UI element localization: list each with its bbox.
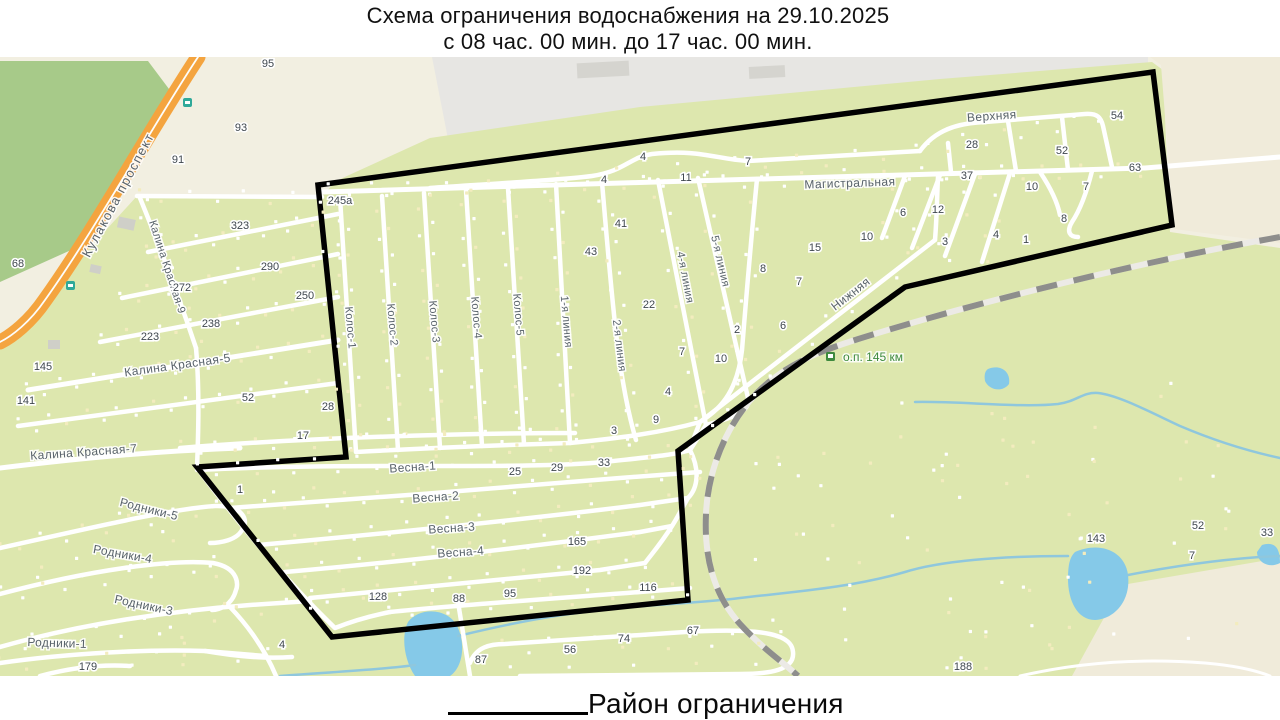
house-dot — [1179, 477, 1182, 480]
house-number: 7 — [679, 346, 685, 358]
house-dot — [338, 219, 341, 222]
house-dot — [1185, 440, 1188, 443]
house-dot — [663, 179, 666, 182]
house-number: 179 — [79, 661, 97, 673]
house-dot — [247, 511, 250, 514]
house-dot — [445, 181, 448, 184]
house-dot — [843, 608, 846, 611]
house-dot — [323, 303, 326, 306]
house-dot — [292, 256, 295, 259]
house-dot — [317, 379, 320, 382]
house-dot — [392, 553, 395, 556]
house-dot — [254, 437, 257, 440]
house-dot — [431, 546, 434, 549]
house-dot — [622, 187, 625, 190]
house-dot — [644, 566, 647, 569]
house-dot — [613, 314, 616, 317]
house-number: 93 — [235, 122, 247, 134]
house-dot — [375, 566, 378, 569]
house-dot — [343, 363, 346, 366]
house-dot — [932, 469, 935, 472]
house-dot — [169, 626, 172, 629]
house-dot — [549, 449, 552, 452]
house-dot — [586, 180, 589, 183]
house-dot — [25, 382, 28, 385]
legend: Район ограничения — [448, 688, 844, 720]
house-dot — [65, 422, 68, 425]
house-number: 52 — [1192, 520, 1204, 532]
house-dot — [143, 617, 146, 620]
house-dot — [661, 229, 664, 232]
house-dot — [256, 472, 259, 475]
house-dot — [47, 413, 50, 416]
house-dot — [295, 217, 298, 220]
house-dot — [472, 217, 475, 220]
house-dot — [152, 400, 155, 403]
house-dot — [434, 448, 437, 451]
house-dot — [1083, 552, 1086, 555]
house-dot — [515, 411, 518, 414]
house-number: 3 — [611, 425, 617, 437]
house-dot — [826, 557, 829, 560]
house-dot — [311, 224, 314, 227]
house-dot — [660, 478, 663, 481]
house-number: 238 — [202, 318, 220, 330]
house-dot — [327, 182, 330, 185]
house-dot — [429, 388, 432, 391]
house-dot — [386, 386, 389, 389]
house-dot — [682, 339, 685, 342]
house-dot — [262, 234, 265, 237]
house-dot — [604, 472, 607, 475]
house-number: 7 — [745, 156, 751, 168]
house-dot — [608, 182, 611, 185]
house-dot — [137, 299, 140, 302]
house-dot — [342, 588, 345, 591]
house-dot — [418, 234, 421, 237]
house-dot — [195, 234, 198, 237]
house-dot — [40, 566, 43, 569]
house-dot — [882, 170, 885, 173]
house-dot — [500, 639, 503, 642]
house-dot — [669, 529, 672, 532]
house-dot — [321, 250, 324, 253]
bus-stop-icon — [66, 281, 75, 290]
house-dot — [473, 495, 476, 498]
house-number: 88 — [453, 593, 465, 605]
house-dot — [172, 539, 175, 542]
house-number: 7 — [1189, 550, 1195, 562]
house-dot — [65, 539, 68, 542]
legend-label: Район ограничения — [588, 688, 844, 720]
house-dot — [326, 504, 329, 507]
house-dot — [961, 133, 964, 136]
house-dot — [783, 185, 786, 188]
house-dot — [928, 213, 931, 216]
house-dot — [358, 404, 361, 407]
house-dot — [293, 437, 296, 440]
title-line-2: с 08 час. 00 мин. до 17 час. 00 мин. — [0, 29, 1256, 55]
house-dot — [236, 237, 239, 240]
house-dot — [474, 416, 477, 419]
house-dot — [431, 221, 434, 224]
house-dot — [698, 477, 701, 480]
house-dot — [127, 514, 130, 517]
house-dot — [564, 179, 567, 182]
house-dot — [431, 418, 434, 421]
house-dot — [722, 307, 725, 310]
house-dot — [236, 461, 239, 464]
house-dot — [515, 247, 518, 250]
house-dot — [125, 328, 128, 331]
house-dot — [591, 445, 594, 448]
house-dot — [370, 525, 373, 528]
house-number: 245а — [328, 195, 353, 207]
house-dot — [343, 491, 346, 494]
house-dot — [611, 213, 614, 216]
house-dot — [477, 278, 480, 281]
house-number: 4 — [640, 151, 646, 163]
house-dot — [165, 563, 168, 566]
house-dot — [822, 452, 825, 455]
house-dot — [1099, 175, 1102, 178]
house-dot — [567, 475, 570, 478]
house-dot — [738, 379, 741, 382]
house-dot — [326, 600, 329, 603]
house-dot — [549, 593, 552, 596]
house-dot — [676, 247, 679, 250]
house-dot — [969, 630, 972, 633]
house-dot — [376, 584, 379, 587]
house-dot — [390, 449, 393, 452]
house-dot — [287, 342, 290, 345]
house-dot — [854, 149, 857, 152]
house-dot — [648, 177, 651, 180]
house-dot — [797, 474, 800, 477]
house-dot — [431, 589, 434, 592]
house-dot — [341, 302, 344, 305]
house-dot — [702, 390, 705, 393]
house-dot — [735, 349, 738, 352]
house-dot — [493, 460, 496, 463]
poi-label: о.п. 145 км — [843, 350, 903, 364]
house-dot — [945, 453, 948, 456]
house-dot — [81, 524, 84, 527]
house-dot — [721, 174, 724, 177]
house-dot — [489, 607, 492, 610]
house-dot — [744, 358, 747, 361]
house-dot — [279, 270, 282, 273]
house-dot — [218, 393, 221, 396]
house-dot — [908, 178, 911, 181]
house-dot — [603, 675, 606, 676]
house-number: 10 — [1026, 181, 1038, 193]
house-dot — [365, 433, 368, 436]
house-dot — [769, 374, 772, 377]
house-dot — [309, 607, 312, 610]
house-dot — [515, 443, 518, 446]
house-dot — [236, 660, 239, 663]
house-dot — [754, 558, 757, 561]
house-dot — [209, 564, 212, 567]
railway-stop-icon — [826, 352, 835, 361]
house-dot — [711, 272, 714, 275]
house-dot — [547, 637, 550, 640]
house-dot — [1001, 439, 1004, 442]
house-dot — [92, 373, 95, 376]
house-dot — [1000, 581, 1003, 584]
house-dot — [626, 438, 629, 441]
house-dot — [406, 181, 409, 184]
house-dot — [1019, 136, 1022, 139]
house-dot — [1112, 632, 1115, 635]
house-number: 41 — [615, 218, 627, 230]
house-dot — [937, 242, 940, 245]
house-dot — [712, 214, 715, 217]
house-dot — [312, 264, 315, 267]
map-canvas[interactable]: Кулакова проспектКалина Красная-9Калина … — [0, 57, 1280, 676]
house-dot — [135, 414, 138, 417]
house-dot — [695, 662, 698, 665]
house-dot — [103, 583, 106, 586]
house-number: 4 — [279, 639, 285, 651]
house-dot — [704, 230, 707, 233]
house-dot — [764, 166, 767, 169]
house-dot — [1169, 382, 1172, 385]
house-dot — [848, 584, 851, 587]
house-dot — [674, 305, 677, 308]
house-dot — [1028, 589, 1031, 592]
house-dot — [170, 409, 173, 412]
house-dot — [512, 186, 515, 189]
house-dot — [941, 464, 944, 467]
house-dot — [376, 490, 379, 493]
house-dot — [1187, 637, 1190, 640]
house-dot — [555, 288, 558, 291]
house-dot — [249, 388, 252, 391]
house-dot — [500, 440, 503, 443]
house-number: 141 — [17, 395, 35, 407]
house-number: 28 — [966, 139, 978, 151]
house-dot — [509, 665, 512, 668]
house-dot — [161, 530, 164, 533]
house-number: 250 — [296, 290, 314, 302]
house-dot — [984, 635, 987, 638]
house-dot — [489, 480, 492, 483]
house-dot — [629, 364, 632, 367]
house-dot — [478, 513, 481, 516]
house-dot — [235, 605, 238, 608]
house-dot — [118, 292, 121, 295]
house-dot — [181, 663, 184, 666]
house-number: 52 — [1056, 145, 1068, 157]
house-dot — [615, 240, 618, 243]
house-dot — [553, 256, 556, 259]
house-dot — [1072, 115, 1075, 118]
house-number: 56 — [564, 644, 576, 656]
house-dot — [566, 271, 569, 274]
house-number: 43 — [585, 246, 597, 258]
house-dot — [549, 199, 552, 202]
house-dot — [382, 299, 385, 302]
house-dot — [508, 451, 511, 454]
house-dot — [1012, 174, 1015, 177]
house-dot — [387, 418, 390, 421]
house-dot — [695, 193, 698, 196]
house-dot — [984, 234, 987, 237]
house-dot — [795, 154, 798, 157]
house-dot — [215, 575, 218, 578]
house-dot — [947, 611, 950, 614]
house-number: 52 — [242, 392, 254, 404]
house-dot — [199, 452, 202, 455]
house-dot — [272, 395, 275, 398]
house-dot — [188, 611, 191, 614]
house-dot — [212, 555, 215, 558]
house-dot — [694, 405, 697, 408]
house-dot — [236, 267, 239, 270]
house-dot — [1040, 164, 1043, 167]
house-dot — [949, 597, 952, 600]
house-dot — [576, 531, 579, 534]
house-dot — [843, 168, 846, 171]
house-dot — [502, 580, 505, 583]
house-dot — [242, 189, 245, 192]
house-dot — [776, 456, 779, 459]
house-dot — [1088, 581, 1091, 584]
house-dot — [561, 409, 564, 412]
bus-stop-icon — [183, 98, 192, 107]
house-dot — [754, 462, 757, 465]
house-number: 10 — [861, 231, 873, 243]
house-dot — [985, 667, 988, 670]
house-number: 116 — [639, 582, 657, 594]
house-dot — [355, 455, 358, 458]
house-dot — [589, 561, 592, 564]
house-dot — [605, 259, 608, 262]
house-dot — [359, 433, 362, 436]
house-dot — [382, 330, 385, 333]
house-dot — [188, 190, 191, 193]
house-dot — [460, 203, 463, 206]
house-dot — [95, 625, 98, 628]
house-dot — [563, 544, 566, 547]
house-dot — [116, 343, 119, 346]
house-dot — [831, 524, 834, 527]
house-number: 4 — [665, 386, 671, 398]
house-dot — [900, 401, 903, 404]
house-dot — [612, 527, 615, 530]
house-dot — [103, 419, 106, 422]
house-dot — [183, 654, 186, 657]
house-dot — [236, 401, 239, 404]
house-dot — [618, 271, 621, 274]
house-dot — [926, 187, 929, 190]
house-dot — [130, 664, 133, 667]
house-dot — [621, 646, 624, 649]
house-dot — [215, 473, 218, 476]
house-number: 33 — [1261, 527, 1273, 539]
house-dot — [36, 576, 39, 579]
house-dot — [18, 547, 21, 550]
house-dot — [454, 483, 457, 486]
house-dot — [965, 213, 968, 216]
house-dot — [230, 499, 233, 502]
house-number: 22 — [643, 299, 655, 311]
house-dot — [21, 596, 24, 599]
house-dot — [532, 459, 535, 462]
house-dot — [292, 471, 295, 474]
house-dot — [703, 184, 706, 187]
house-dot — [337, 243, 340, 246]
house-number: 6 — [780, 320, 786, 332]
house-dot — [730, 345, 733, 348]
house-number: 8 — [760, 263, 766, 275]
house-number: 17 — [297, 430, 309, 442]
house-dot — [182, 324, 185, 327]
house-dot — [766, 173, 769, 176]
house-number: 4 — [993, 229, 999, 241]
house-dot — [710, 645, 713, 648]
house-dot — [158, 325, 161, 328]
house-number: 128 — [369, 591, 387, 603]
house-dot — [531, 479, 534, 482]
house-dot — [417, 207, 420, 210]
house-dot — [436, 284, 439, 287]
house-number: 91 — [172, 154, 184, 166]
house-number: 165 — [568, 536, 586, 548]
house-dot — [412, 563, 415, 566]
house-dot — [336, 470, 339, 473]
house-number: 8 — [1061, 213, 1067, 225]
house-dot — [139, 216, 142, 219]
house-dot — [466, 600, 469, 603]
house-dot — [926, 548, 929, 551]
house-dot — [568, 666, 571, 669]
house-dot — [398, 593, 401, 596]
house-dot — [645, 470, 648, 473]
house-dot — [1000, 164, 1003, 167]
house-dot — [648, 456, 651, 459]
house-dot — [760, 175, 763, 178]
house-dot — [757, 642, 760, 645]
house-dot — [695, 355, 698, 358]
house-dot — [1227, 510, 1230, 513]
house-dot — [422, 300, 425, 303]
house-dot — [286, 229, 289, 232]
house-dot — [508, 191, 511, 194]
house-number: 6 — [900, 207, 906, 219]
house-dot — [525, 397, 528, 400]
house-dot — [557, 566, 560, 569]
house-dot — [778, 463, 781, 466]
house-dot — [522, 569, 525, 572]
house-dot — [539, 438, 542, 441]
house-dot — [155, 650, 158, 653]
house-dot — [703, 173, 706, 176]
house-dot — [550, 228, 553, 231]
house-dot — [577, 515, 580, 518]
house-dot — [1173, 542, 1176, 545]
house-number: 95 — [262, 58, 274, 70]
house-dot — [948, 259, 951, 262]
house-dot — [895, 209, 898, 212]
house-dot — [207, 274, 210, 277]
house-dot — [260, 613, 263, 616]
house-dot — [593, 636, 596, 639]
house-dot — [643, 634, 646, 637]
house-dot — [386, 445, 389, 448]
